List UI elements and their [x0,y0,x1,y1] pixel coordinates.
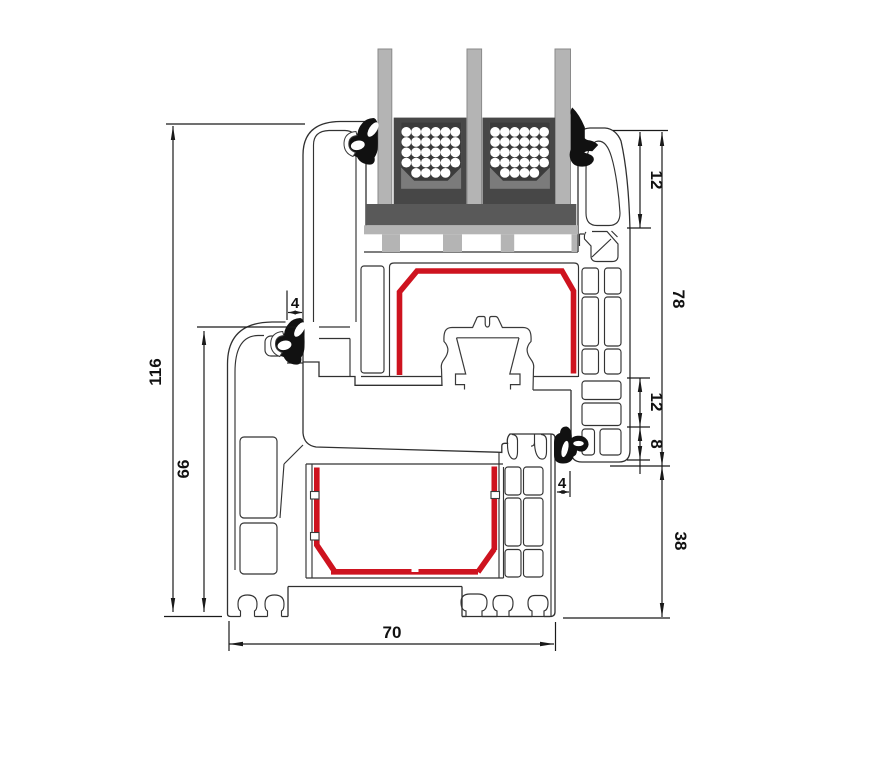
svg-text:8: 8 [647,439,666,448]
svg-text:4: 4 [291,295,300,312]
svg-text:70: 70 [383,623,402,642]
svg-text:66: 66 [174,460,193,479]
svg-text:116: 116 [146,358,165,385]
svg-text:38: 38 [671,532,690,551]
svg-text:12: 12 [647,393,666,412]
svg-text:78: 78 [669,290,688,309]
svg-text:12: 12 [647,171,666,190]
svg-text:4: 4 [558,475,567,492]
